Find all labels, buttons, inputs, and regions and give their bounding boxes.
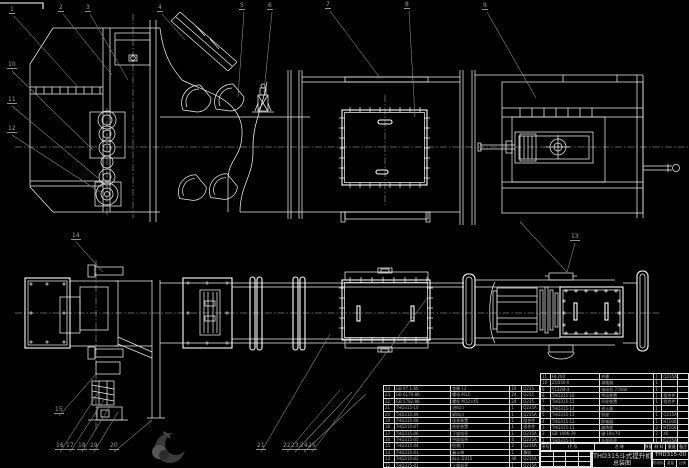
bom-header-cell: 备注 — [678, 444, 688, 450]
bom-cell-mat: Q235A — [522, 437, 539, 442]
bom-cell-name: 头轮装置 — [600, 399, 654, 404]
balloon-number: 11 — [7, 97, 17, 104]
boot-section — [30, 20, 160, 222]
bom-cell-mat: Q235A — [522, 456, 539, 461]
bom-cell-qty: 1 — [510, 412, 522, 417]
balloon-number: 25 — [307, 443, 317, 450]
bom-cell-seq: 19 — [384, 418, 395, 423]
bom-cell-mat: 组合件 — [522, 424, 539, 429]
inspection-door-plan — [342, 268, 430, 352]
bom-cell-code: THD315-03 — [395, 450, 451, 455]
balloon-number: 17 — [65, 443, 75, 450]
bom-cell-qty: 4 — [510, 437, 522, 442]
bom-cell-name: 底轮装置 — [451, 424, 510, 429]
front-view — [15, 12, 688, 225]
bom-cell-name: 上部机壳 — [451, 463, 510, 468]
bom-cell-qty: 1 — [510, 405, 522, 410]
bom-cell-mat: 组合件 — [522, 418, 539, 423]
cad-drawing-canvas: 1234567891011121314151617181920212223242… — [0, 0, 689, 468]
bom-cell-name: 护罩 — [600, 374, 654, 379]
bom-cell-name: 中部机壳 — [451, 437, 510, 442]
bom-cell-qty: 1 — [510, 450, 522, 455]
inspection-door-front — [342, 110, 427, 185]
leader-line — [76, 242, 103, 272]
balloon-number: 15 — [54, 407, 64, 414]
bom-cell-code: THD315-15 — [551, 399, 600, 404]
leader-line — [409, 11, 415, 117]
bom-cell-qty: 1 — [510, 431, 522, 436]
bom-cell-mat: 45 — [662, 431, 678, 436]
bom-cell-code: THD315-10 — [395, 405, 451, 410]
bom-cell-name: 下部机壳 — [451, 431, 510, 436]
bom-cell-qty: 24 — [510, 399, 522, 404]
leader-line — [63, 14, 112, 75]
bom-cell-mat: Q235A — [522, 431, 539, 436]
bom-cell-seq: 14 — [384, 450, 395, 455]
bom-cell-name: 电动机 7.5kW — [600, 387, 654, 392]
bom-cell-qty: 46 — [510, 456, 522, 461]
boot-pulley-stack — [90, 111, 125, 206]
balloon-number: 19 — [89, 443, 99, 450]
balloon-number: 20 — [109, 443, 119, 450]
bom-cell-qty: 1 — [654, 387, 662, 392]
bom-cell-code: THD315-14 — [551, 406, 600, 411]
bom-cell-code: THD315-01 — [395, 463, 451, 468]
bom-cell-name: 螺栓 M12×45 — [451, 399, 510, 404]
bom-cell-qty: 1 — [510, 424, 522, 429]
bom-cell-mat: HT200 — [662, 419, 678, 424]
bom-cell-mat: Q235A — [522, 412, 539, 417]
head-section-plan — [463, 271, 648, 359]
bom-cell-wt — [678, 431, 688, 436]
bom-cell-mat — [662, 380, 678, 385]
tick-marks — [562, 289, 621, 335]
bom-cell-code: THD315-05 — [395, 437, 451, 442]
balloon-number: 1 — [9, 7, 15, 14]
bom-cell-code: ZQ350-Ⅱ — [551, 380, 600, 385]
title-block-small-cells: 阶段标记 重量 比例 — [652, 460, 689, 468]
bom-cell-seq: 2 — [541, 431, 551, 436]
bom-cell-code: GB 6170-86 — [395, 392, 451, 397]
bom-cell-code: THD315-12 — [551, 419, 600, 424]
weight-label: 重量 — [665, 460, 677, 467]
balloon-number: 21 — [256, 443, 266, 450]
balloon-number: 13 — [570, 234, 580, 241]
bom-table-right: 11HJ-200护罩1Q235A10ZQ350-Ⅱ减速器19Y132M-4电动机… — [540, 373, 689, 443]
bom-header-cell: 代 号 — [551, 444, 595, 450]
bom-cell-seq: 17 — [384, 431, 395, 436]
head-drive-front — [460, 70, 680, 225]
bom-cell-code: THD315-16 — [551, 393, 600, 398]
bom-cell-code: HJ-200 — [551, 374, 600, 379]
bom-cell-code: GB 5782-86 — [395, 399, 451, 404]
bom-cell-seq: 15 — [384, 443, 395, 448]
leader-line — [12, 71, 93, 150]
drawing-type: 总装图 — [593, 460, 651, 467]
bom-cell-seq: 20 — [384, 412, 395, 417]
tail-section-plan — [25, 265, 165, 420]
bom-cell-seq: 12 — [384, 463, 395, 468]
stage-label: 阶段标记 — [653, 460, 665, 467]
bom-cell-wt — [678, 406, 688, 411]
bom-cell-mat: HT200 — [662, 425, 678, 430]
revision-grid — [540, 451, 592, 468]
leader-line — [59, 373, 97, 416]
bom-cell-mat: Q235 — [522, 399, 539, 404]
bom-header-cell: 序号 — [541, 444, 551, 450]
bom-cell-code: GB 1096-79 — [551, 431, 600, 436]
bom-cell-wt — [678, 425, 688, 430]
balloon-number: 8 — [404, 2, 410, 9]
bom-cell-name: 键 18×70 — [600, 431, 654, 436]
bom-cell-seq: 22 — [384, 399, 395, 404]
bom-cell-qty: 1 — [654, 412, 662, 417]
bom-cell-mat: Q235 — [522, 392, 539, 397]
leader-line — [261, 334, 330, 452]
balloon-number: 12 — [7, 126, 17, 133]
bom-cell-mat: 组合件 — [662, 393, 678, 398]
bom-cell-seq: 7 — [541, 399, 551, 404]
bom-cell-seq: 16 — [384, 437, 395, 442]
bom-cell-wt — [678, 419, 688, 424]
bom-cell-name: 料斗 D315 — [451, 456, 510, 461]
bom-cell-seq: 13 — [384, 456, 395, 461]
bom-cell-name: 轴承座 — [600, 425, 654, 430]
bom-cell-seq: 5 — [541, 412, 551, 417]
balloon-number: 4 — [157, 5, 163, 12]
bom-cell-seq: 10 — [541, 380, 551, 385]
bom-cell-wt — [678, 380, 688, 385]
leader-line — [264, 12, 272, 92]
bom-cell-mat: Q235A — [662, 412, 678, 417]
bom-cell-mat: Q235 — [522, 386, 539, 391]
leader-line — [12, 135, 100, 192]
product-title: THD315斗式提升机 — [593, 452, 651, 460]
bom-cell-code: THD315-04 — [395, 443, 451, 448]
title-block: THD315斗式提升机 总装图 — [592, 451, 652, 468]
bom-cell-mat: Q235A — [522, 443, 539, 448]
scale-label: 比例 — [677, 460, 688, 467]
bom-header-cell: 数量 — [645, 444, 653, 450]
balloon-number: 9 — [482, 3, 488, 10]
bom-cell-seq: 6 — [541, 406, 551, 411]
balloon-number: 10 — [7, 62, 17, 69]
drawing-number: THD315-00 — [652, 451, 689, 460]
bom-cell-wt — [678, 374, 688, 379]
bom-cell-seq: 4 — [541, 419, 551, 424]
bom-cell-qty: 2 — [654, 425, 662, 430]
bom-cell-code: THD315-07 — [395, 424, 451, 429]
bom-header-cell: 重量 — [666, 444, 678, 450]
bom-cell-mat: Q235A — [522, 463, 539, 468]
bom-cell-seq: 9 — [541, 387, 551, 392]
bom-cell-seq: 3 — [541, 425, 551, 430]
bom-cell-mat: 橡胶 — [522, 450, 539, 455]
bom-cell-qty: 2 — [654, 431, 662, 436]
tick-marks — [520, 108, 592, 117]
bom-cell-wt — [678, 399, 688, 404]
bom-header-cell: 名 称 — [595, 444, 644, 450]
bom-cell-name: 联轴器 — [600, 419, 654, 424]
bom-cell-name: 畚斗带 — [451, 450, 510, 455]
bom-cell-name: 张紧装置 — [451, 418, 510, 423]
balloon-number: 18 — [77, 443, 87, 450]
bom-cell-seq: 11 — [541, 374, 551, 379]
bom-cell-name: 螺母 M12 — [451, 392, 510, 397]
bom-header-row: 序号代 号名 称数量材 料重量备注 — [540, 443, 689, 451]
bom-cell-qty: 24 — [510, 386, 522, 391]
bom-cell-qty: 1 — [654, 380, 662, 385]
bom-cell-seq: 21 — [384, 405, 395, 410]
bom-header-cell: 材 料 — [652, 444, 666, 450]
curved-casing — [160, 28, 310, 212]
bom-cell-seq: 8 — [541, 393, 551, 398]
leader-line — [238, 12, 244, 97]
casing-plan — [160, 277, 464, 350]
balloon-number: 6 — [267, 3, 273, 10]
bom-cell-name: 卸料口 — [451, 412, 510, 417]
buckets — [178, 84, 244, 200]
bom-cell-name: 机座 — [600, 412, 654, 417]
leader-line — [162, 14, 185, 40]
leader-line — [14, 16, 78, 87]
bom-cell-code: THD315-06 — [395, 431, 451, 436]
bom-cell-code: Y132M-4 — [551, 387, 600, 392]
bom-cell-name: 传动装置 — [600, 393, 654, 398]
bom-cell-name: 垫圈 12 — [451, 386, 510, 391]
bom-cell-name: 检视门 — [451, 443, 510, 448]
frame-corner — [0, 3, 43, 9]
bom-cell-qty: 1 — [510, 463, 522, 468]
bom-cell-name: 逆止器 — [600, 406, 654, 411]
bom-cell-qty: 1 — [654, 374, 662, 379]
bom-cell-seq: 18 — [384, 424, 395, 429]
bom-cell-name: 进料口 — [451, 405, 510, 410]
bom-table-left: 24GB 97.1-85垫圈 1224Q23523GB 6170-86螺母 M1… — [383, 385, 540, 468]
balloon-number: 2 — [58, 5, 64, 12]
leader-line — [90, 14, 128, 80]
leader-line — [487, 12, 536, 98]
balloon-number: 16 — [55, 443, 65, 450]
leader-line — [330, 11, 380, 78]
bom-cell-mat: Q235A — [662, 374, 678, 379]
bom-cell-wt — [678, 387, 688, 392]
bom-cell-qty: 1 — [510, 418, 522, 423]
watermark-stamp — [152, 432, 187, 463]
bom-cell-wt — [678, 412, 688, 417]
bom-cell-mat: 组合件 — [662, 399, 678, 404]
bom-cell-seq: 23 — [384, 392, 395, 397]
bom-cell-wt — [678, 393, 688, 398]
bom-cell-qty: 24 — [510, 392, 522, 397]
leader-line — [567, 243, 575, 272]
leader-line — [520, 222, 567, 272]
bom-cell-code: THD315-08 — [395, 418, 451, 423]
bom-cell-code: THD315-02 — [395, 456, 451, 461]
tick-marks — [36, 87, 100, 94]
balloon-number: 5 — [239, 3, 245, 10]
bom-cell-qty: 1 — [654, 419, 662, 424]
bom-cell-code: THD315-09 — [395, 412, 451, 417]
bom-cell-mat: Q235A — [522, 405, 539, 410]
bom-cell-mat — [662, 387, 678, 392]
bom-cell-mat — [662, 406, 678, 411]
leader-line — [114, 420, 152, 452]
feed-chute — [171, 12, 237, 71]
balloon-number: 14 — [71, 233, 81, 240]
bom-cell-code: THD315-13 — [551, 412, 600, 417]
bom-cell-qty: 1 — [654, 393, 662, 398]
bom-cell-qty: 2 — [510, 443, 522, 448]
bom-cell-qty: 1 — [654, 406, 662, 411]
bom-cell-code: THD315-11 — [551, 425, 600, 430]
bom-cell-qty: 1 — [654, 399, 662, 404]
bom-row: 12THD315-01上部机壳1Q235A — [384, 463, 539, 468]
balloon-number: 3 — [85, 5, 91, 12]
balloon-number: 7 — [325, 2, 331, 9]
bom-cell-seq: 24 — [384, 386, 395, 391]
bom-cell-code: GB 97.1-85 — [395, 386, 451, 391]
bom-cell-name: 减速器 — [600, 380, 654, 385]
